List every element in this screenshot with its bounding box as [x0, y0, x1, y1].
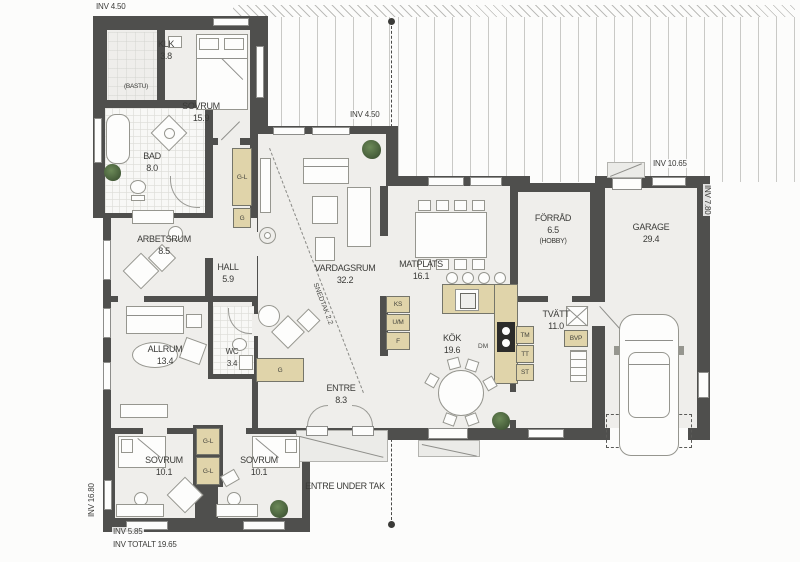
plant-kok [492, 412, 510, 430]
section-line-dot-bottom [388, 521, 395, 528]
door-kok-tvatt [510, 392, 518, 420]
section-line-bottom [391, 434, 392, 520]
room-name: HALL [193, 261, 263, 273]
window [103, 362, 111, 390]
window [273, 127, 305, 135]
dining-chair [436, 200, 449, 211]
window [104, 480, 112, 510]
stove-burner [502, 327, 510, 335]
room-name: TVÄTT [521, 308, 591, 320]
outdoor-label: ENTRE UNDER TAK [305, 480, 385, 492]
entre-door-right [352, 426, 374, 436]
room-area: 3.8 [131, 50, 201, 62]
sofa-side [347, 187, 371, 247]
dim-bottom-total: INV TOTALT 19.65 [112, 540, 178, 549]
closet-label: G [240, 215, 245, 222]
appliance-st: ST [516, 364, 534, 381]
closet-gl-bedroom1: G-L [196, 428, 220, 455]
label-forrad: FÖRRÅD 6.5 (HOBBY) [518, 212, 588, 248]
appliance-bvp: BVP [564, 330, 588, 347]
dim-right-side: INV 7.80 [703, 184, 712, 216]
cabinet-label: KS [394, 301, 402, 308]
room-name: ENTRE [306, 382, 376, 394]
room-name: GARAGE [616, 221, 686, 233]
pillow [121, 439, 133, 453]
side-table-allrum [186, 314, 202, 328]
sofa [303, 158, 349, 184]
room-name: BAD [117, 150, 187, 162]
label-matplats: MATPLATS 16.1 [386, 258, 456, 282]
room-extra: (HOBBY) [518, 236, 588, 248]
dim-left-side: INV 16.80 [87, 482, 96, 518]
cabinet-ks: KS [386, 296, 410, 313]
window [652, 177, 686, 186]
window [103, 308, 111, 338]
car-windshield [629, 364, 669, 365]
label-entre-under-tak: ENTRE UNDER TAK [305, 480, 385, 492]
room-name: FÖRRÅD [518, 212, 588, 224]
label-dm: DM [478, 343, 488, 350]
pillow [285, 439, 297, 453]
room-area: 16.1 [386, 270, 456, 282]
toilet-tank-bad [131, 195, 145, 201]
dining-table [415, 212, 487, 258]
floor-plan-canvas: G-L G G G-L G-L KS U/M F TM TT ST BVP [0, 0, 800, 562]
car-mirror [614, 346, 620, 355]
room-area: 29.4 [616, 233, 686, 245]
room-name: ARBETSRUM [129, 233, 199, 245]
sofa-allrum [126, 306, 184, 334]
roof-hatch-right [398, 17, 795, 182]
room-name: ALLRUM [130, 343, 200, 355]
wall-wc-south [208, 374, 256, 379]
window [243, 521, 285, 530]
dining-chair [454, 200, 467, 211]
sofa-back-line [304, 166, 348, 167]
label-tvatt: TVÄTT 11.0 [521, 308, 591, 332]
dining-chair [418, 200, 431, 211]
room-name: SOVRUM [129, 454, 199, 466]
room-name: SOVRUM [166, 100, 236, 112]
cabinet-um: U/M [386, 314, 410, 331]
window [213, 18, 249, 26]
door-sovrum3 [222, 427, 246, 435]
appliance-label: TT [521, 351, 529, 358]
label-hall: HALL 5.9 [193, 261, 263, 285]
wall-matplats-stub-n [380, 186, 388, 236]
armchair-entre [258, 305, 280, 327]
dining-chair [472, 200, 485, 211]
window [470, 177, 502, 186]
door-sovrum2 [143, 427, 167, 435]
door-forrad [548, 296, 572, 302]
wall-bad-east [205, 108, 213, 218]
cabinet-label: F [396, 338, 400, 345]
door-allrum [118, 296, 144, 302]
bar-stool [478, 272, 490, 284]
side-table [315, 237, 335, 261]
closet-label: G [278, 367, 283, 374]
sink-basin [164, 128, 175, 139]
desk-arbetsrum [132, 210, 174, 224]
kitchen-table [438, 370, 484, 416]
tv-bench [260, 158, 271, 213]
closet-g-hall: G [233, 208, 251, 228]
label-arbetsrum: ARBETSRUM 8.5 [129, 233, 199, 257]
door-hall-vardagsrum [250, 232, 258, 256]
label-garage: GARAGE 29.4 [616, 221, 686, 245]
dim-bottom-width: INV 5.85 [112, 527, 144, 536]
room-area: 8.5 [129, 245, 199, 257]
plant-sovrum3 [270, 500, 288, 518]
closet-label: G-L [237, 174, 247, 181]
room-name: KÖK [417, 332, 487, 344]
room-area: 5.9 [193, 273, 263, 285]
cabinet-f: F [386, 332, 410, 350]
dim-top-left: INV 4.50 [95, 2, 127, 11]
fireplace-core [264, 232, 271, 239]
closet-label: G-L [203, 468, 213, 475]
room-area: 10.1 [224, 466, 294, 478]
garage-side-door [698, 372, 709, 398]
room-area: 6.5 [518, 224, 588, 236]
appliance-tt: TT [516, 345, 534, 363]
label-sovrum1: SOVRUM 15.9 [166, 100, 236, 124]
label-bad: BAD 8.0 [117, 150, 187, 174]
desk-sovrum2 [116, 504, 164, 517]
label-entre: ENTRE 8.3 [306, 382, 376, 406]
appliance-label: TM [521, 332, 530, 339]
section-line-top [391, 26, 392, 132]
window [256, 46, 264, 98]
room-name: (BASTU) [110, 81, 162, 93]
kok-door [428, 428, 468, 439]
appliance-label: ST [521, 369, 529, 376]
window [312, 127, 350, 135]
car-roof [628, 352, 670, 418]
closet-gl-hall: G-L [232, 148, 252, 206]
tv-bench-allrum [120, 404, 168, 418]
room-area: 3.4 [197, 358, 267, 370]
label-sovrum2: SOVRUM 10.1 [129, 454, 199, 478]
room-area: 8.0 [117, 162, 187, 174]
room-name: KLK [131, 38, 201, 50]
room-area: 11.0 [521, 320, 591, 332]
car-mirror [678, 346, 684, 355]
room-area: 15.9 [166, 112, 236, 124]
desk-sovrum3 [216, 504, 258, 517]
appliance-label: BVP [570, 335, 582, 342]
tvatt-shelf [570, 350, 587, 382]
room-area: 10.1 [129, 466, 199, 478]
label-sovrum3: SOVRUM 10.1 [224, 454, 294, 478]
island-sink-basin [460, 293, 476, 309]
room-area: 8.3 [306, 394, 376, 406]
forrad-exterior-door [612, 178, 642, 190]
dim-mid: INV 4.50 [349, 110, 381, 119]
label-allrum: ALLRUM 13.4 [130, 343, 200, 367]
sofa-allrum-back [127, 315, 183, 316]
roof-edge-hatch [233, 5, 795, 17]
room-area: 13.4 [130, 355, 200, 367]
car-hood [625, 340, 673, 341]
window [94, 118, 102, 163]
bar-stool [494, 272, 506, 284]
plant-vardagsrum [362, 140, 381, 159]
bar-stool [462, 272, 474, 284]
closet-gl-bedroom2: G-L [196, 457, 220, 485]
dining-chair [472, 259, 485, 270]
window [428, 177, 464, 186]
pillow [199, 38, 219, 50]
room-name: MATPLATS [386, 258, 456, 270]
toilet-bad [130, 180, 146, 194]
window [528, 429, 564, 438]
entre-door-left [306, 426, 328, 436]
room-area: 19.6 [417, 344, 487, 356]
cabinet-label: U/M [392, 319, 403, 326]
room-area: 32.2 [310, 274, 380, 286]
label-klk: KLK 3.8 [131, 38, 201, 62]
label-wc: WC 3.4 [197, 346, 267, 370]
window [103, 240, 111, 280]
room-name: WC [197, 346, 267, 358]
closet-label: G-L [203, 438, 213, 445]
label-kok: KÖK 19.6 [417, 332, 487, 356]
room-name: SOVRUM [224, 454, 294, 466]
pillow [224, 38, 244, 50]
label-vardagsrum: VARDAGSRUM 32.2 [310, 262, 380, 286]
coffee-table [312, 196, 338, 224]
section-line-dot-top [388, 18, 395, 25]
dim-garage-top: INV 10.65 [652, 159, 688, 168]
room-name: VARDAGSRUM [310, 262, 380, 274]
stove-burner [502, 339, 510, 347]
label-bastu: (BASTU) [110, 81, 162, 93]
